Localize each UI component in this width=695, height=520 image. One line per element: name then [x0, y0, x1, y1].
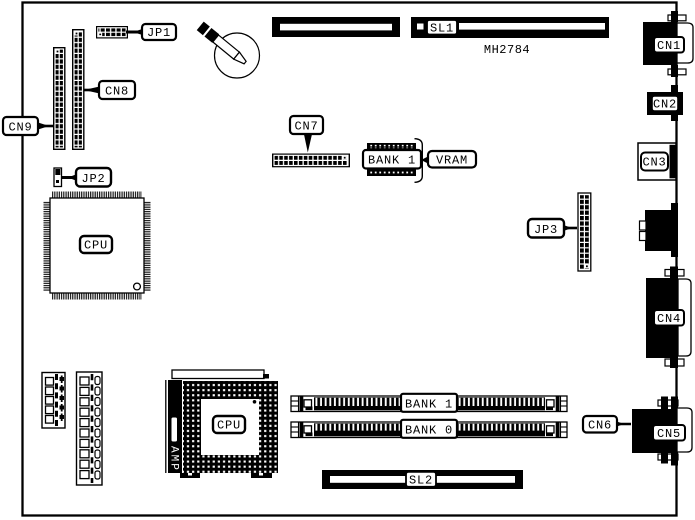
svg-text:CPU: CPU — [84, 239, 108, 253]
svg-text:JP1: JP1 — [147, 26, 171, 40]
svg-text:SL1: SL1 — [430, 21, 454, 35]
svg-text:CN2: CN2 — [653, 98, 677, 112]
svg-text:BANK 1: BANK 1 — [405, 397, 453, 411]
svg-text:CN9: CN9 — [8, 121, 32, 135]
svg-text:CN7: CN7 — [294, 120, 318, 134]
svg-text:JP3: JP3 — [534, 223, 558, 237]
svg-text:BANK 1: BANK 1 — [368, 154, 416, 168]
svg-text:CN1: CN1 — [657, 39, 681, 53]
svg-text:AMP: AMP — [168, 446, 180, 472]
svg-text:BANK 0: BANK 0 — [405, 423, 453, 437]
svg-text:CN4: CN4 — [657, 312, 681, 326]
svg-text:JP2: JP2 — [81, 172, 105, 186]
svg-text:CN6: CN6 — [588, 419, 612, 433]
svg-text:VRAM: VRAM — [436, 154, 468, 168]
svg-text:MH2784: MH2784 — [484, 43, 530, 57]
svg-text:SL2: SL2 — [409, 474, 433, 488]
svg-text:CN8: CN8 — [105, 85, 129, 99]
svg-text:CPU: CPU — [217, 419, 241, 433]
svg-text:CN5: CN5 — [657, 427, 681, 441]
svg-text:CN3: CN3 — [642, 156, 666, 170]
